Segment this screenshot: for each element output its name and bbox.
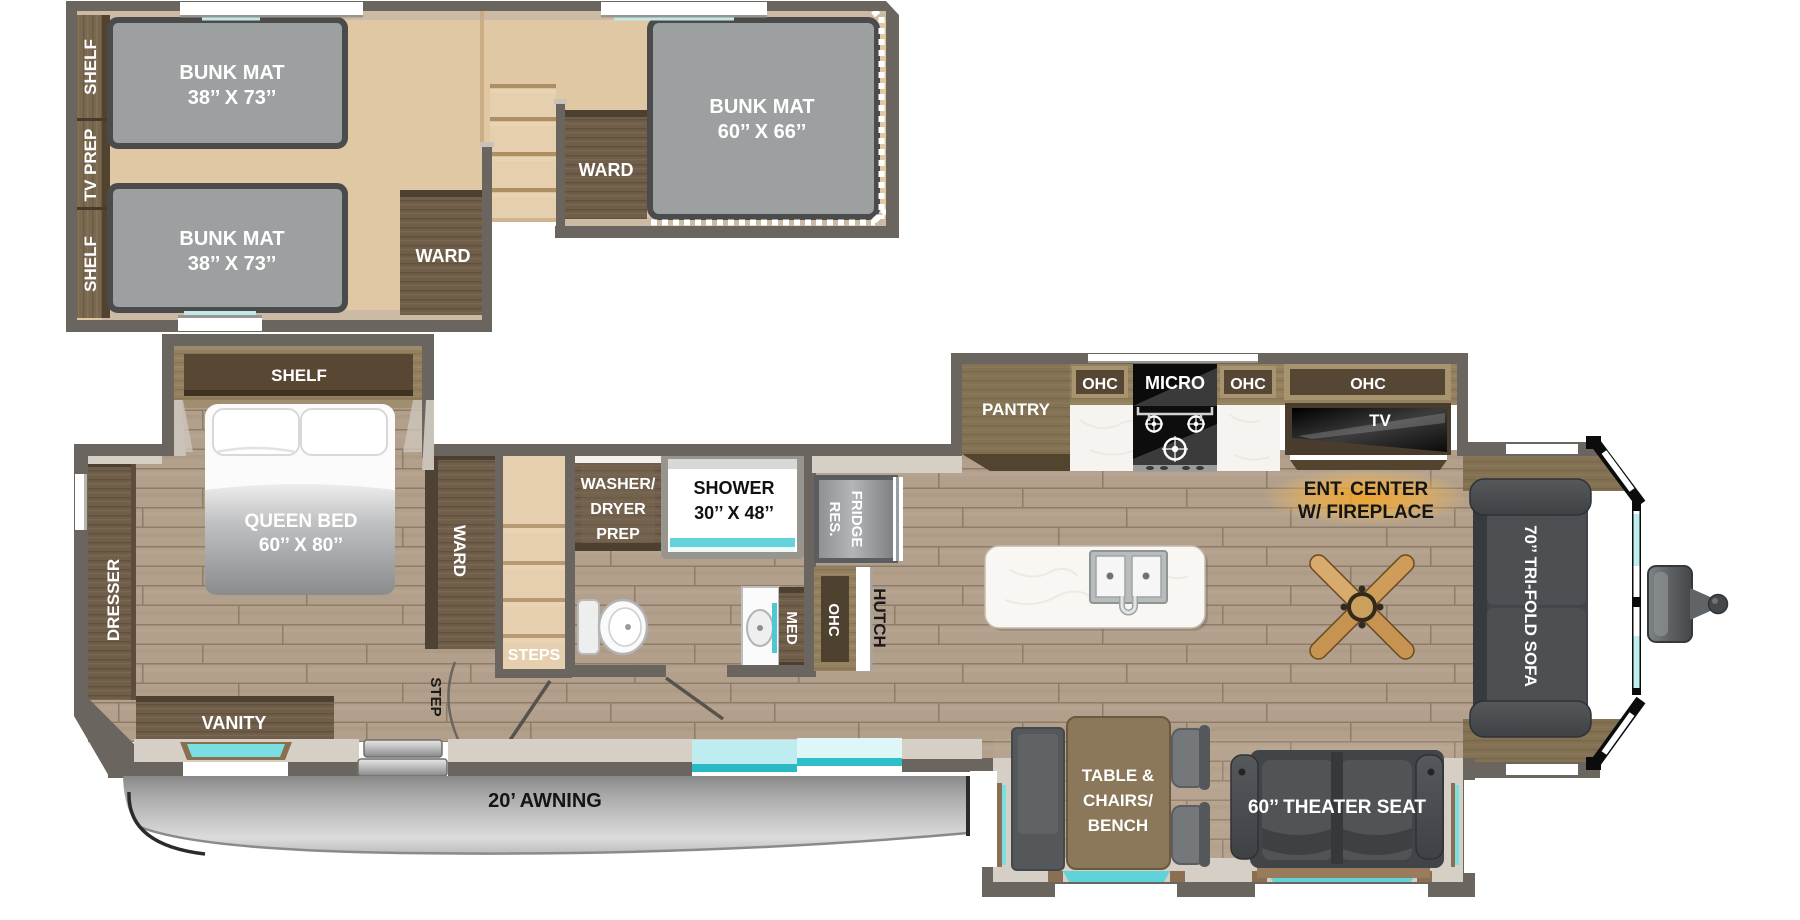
svg-text:30’’ X 48’’: 30’’ X 48’’ bbox=[694, 503, 774, 523]
svg-text:PREP: PREP bbox=[596, 526, 640, 543]
svg-text:OHC: OHC bbox=[1230, 376, 1266, 393]
svg-text:OHC: OHC bbox=[1082, 376, 1118, 393]
svg-text:38’’ X 73’’: 38’’ X 73’’ bbox=[188, 253, 277, 275]
svg-text:DRYER: DRYER bbox=[590, 501, 646, 518]
svg-text:MED: MED bbox=[783, 611, 800, 645]
svg-text:BUNK MAT: BUNK MAT bbox=[179, 62, 284, 84]
svg-text:TV: TV bbox=[1369, 411, 1391, 430]
svg-text:BENCH: BENCH bbox=[1088, 816, 1148, 835]
svg-text:BUNK MAT: BUNK MAT bbox=[179, 228, 284, 250]
svg-text:SHELF: SHELF bbox=[81, 236, 100, 292]
svg-text:SHOWER: SHOWER bbox=[694, 478, 775, 498]
svg-text:WARD: WARD bbox=[450, 525, 469, 577]
svg-text:CHAIRS/: CHAIRS/ bbox=[1083, 791, 1153, 810]
svg-text:20’ AWNING: 20’ AWNING bbox=[488, 790, 602, 812]
svg-text:HUTCH: HUTCH bbox=[870, 588, 889, 648]
svg-text:MICRO: MICRO bbox=[1145, 373, 1205, 393]
svg-text:ENT. CENTER: ENT. CENTER bbox=[1304, 479, 1429, 500]
svg-text:OHC: OHC bbox=[825, 603, 842, 637]
svg-text:60’’ THEATER SEAT: 60’’ THEATER SEAT bbox=[1248, 797, 1426, 818]
svg-text:SHELF: SHELF bbox=[81, 39, 100, 95]
svg-text:STEP: STEP bbox=[427, 677, 444, 716]
svg-text:RES.: RES. bbox=[826, 501, 843, 536]
svg-text:38’’ X 73’’: 38’’ X 73’’ bbox=[188, 87, 277, 109]
svg-text:WASHER/: WASHER/ bbox=[581, 476, 656, 493]
svg-text:SHELF: SHELF bbox=[271, 366, 327, 385]
svg-text:70’’ TRI-FOLD SOFA: 70’’ TRI-FOLD SOFA bbox=[1521, 525, 1540, 687]
svg-text:OHC: OHC bbox=[1350, 376, 1386, 393]
svg-text:60’’ X 66’’: 60’’ X 66’’ bbox=[718, 121, 807, 143]
svg-text:VANITY: VANITY bbox=[202, 713, 267, 733]
svg-text:DRESSER: DRESSER bbox=[104, 559, 123, 641]
svg-text:QUEEN BED: QUEEN BED bbox=[245, 511, 358, 532]
svg-text:WARD: WARD bbox=[416, 246, 471, 266]
svg-text:60’’ X 80’’: 60’’ X 80’’ bbox=[259, 535, 343, 556]
svg-text:TV PREP: TV PREP bbox=[81, 129, 100, 202]
svg-text:TABLE &: TABLE & bbox=[1082, 766, 1154, 785]
svg-text:WARD: WARD bbox=[579, 160, 634, 180]
svg-text:FRIDGE: FRIDGE bbox=[848, 491, 865, 548]
svg-text:PANTRY: PANTRY bbox=[982, 400, 1051, 419]
svg-text:BUNK MAT: BUNK MAT bbox=[709, 96, 814, 118]
svg-text:W/ FIREPLACE: W/ FIREPLACE bbox=[1298, 502, 1434, 523]
svg-text:STEPS: STEPS bbox=[508, 647, 561, 664]
